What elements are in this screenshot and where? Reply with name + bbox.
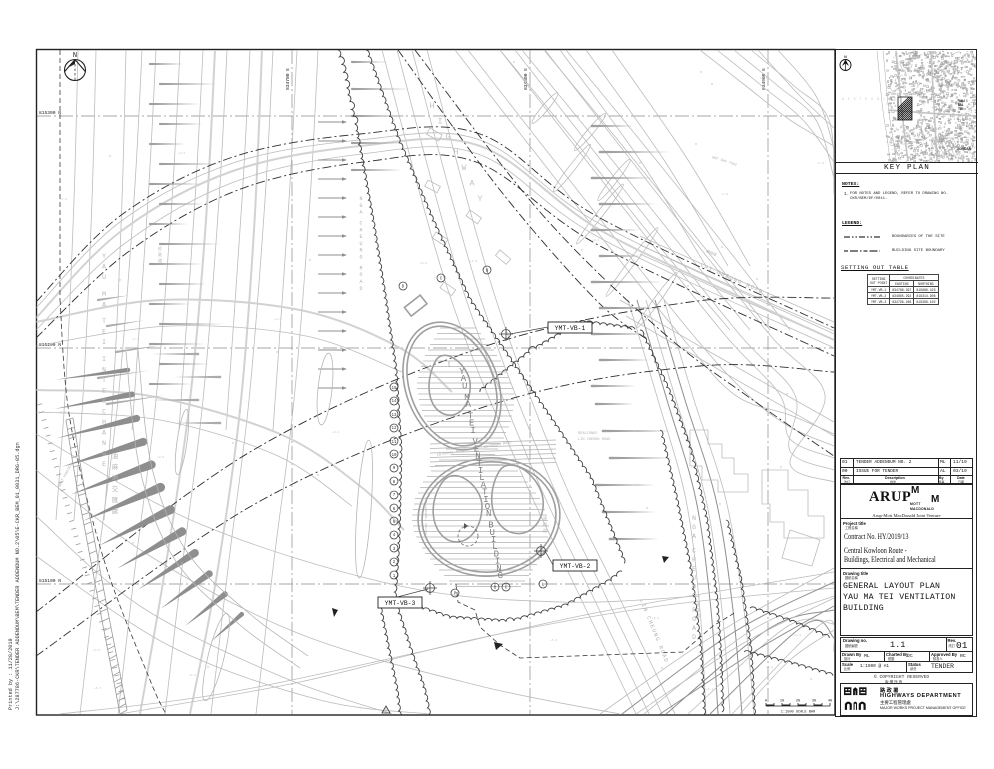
svg-text:Printed by : 11/28/2019: Printed by : 11/28/2019 — [8, 638, 14, 710]
svg-text:W E S T K O W L O O N: W E S T K O W L O O N — [842, 97, 903, 101]
svg-text:J:\287786-CKR\TENDER ADDENDUM\: J:\287786-CKR\TENDER ADDENDUM\BEM\TENDER… — [15, 442, 21, 710]
svg-text:JORDAN: JORDAN — [957, 147, 972, 151]
svg-text:N: N — [844, 55, 847, 59]
svg-text:TEI: TEI — [958, 107, 963, 111]
